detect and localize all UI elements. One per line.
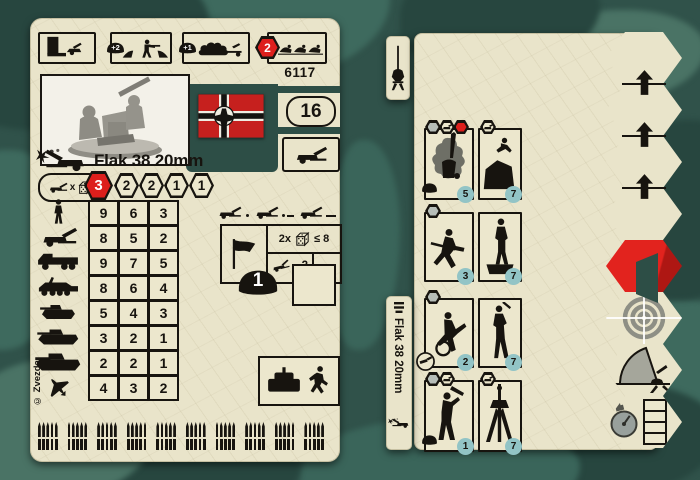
tank-front-icon xyxy=(266,367,302,395)
tiny-gun-icon xyxy=(483,124,494,130)
bullet xyxy=(55,422,58,437)
halftrack-icon xyxy=(37,277,79,297)
ammo-clip xyxy=(156,422,178,454)
entrench-bonus: +2 xyxy=(105,43,126,52)
ammo-clip xyxy=(97,422,119,454)
state-hex-gun-fill xyxy=(442,123,453,132)
strength-track-box xyxy=(292,264,336,306)
truck-icon xyxy=(37,252,79,271)
running-soldier-icon xyxy=(308,365,329,395)
unit-title-vertical: Flak 38 20mm xyxy=(392,318,404,393)
ammo-clip xyxy=(275,422,297,454)
attack-value-cell: 9 xyxy=(88,200,119,226)
bullet-case xyxy=(114,439,117,450)
bullet xyxy=(199,422,202,437)
bullet xyxy=(228,422,231,437)
bullet xyxy=(84,422,87,437)
bullet xyxy=(139,422,142,437)
bullet xyxy=(80,422,83,437)
attack-value-cell: 2 xyxy=(148,375,179,401)
tank-assault-box xyxy=(258,356,340,406)
bullet xyxy=(190,422,193,437)
target-infantry-icon xyxy=(30,200,86,223)
range-dot xyxy=(246,214,249,217)
multiply-label: x xyxy=(70,182,76,193)
attack-value-cell: 2 xyxy=(118,350,149,376)
attack-value-cell: 6 xyxy=(118,275,149,301)
range-gun-icon xyxy=(216,206,242,219)
bullet xyxy=(127,422,130,437)
attack-hex-value: 3 xyxy=(87,174,111,198)
entrench-modifier-box: +2 xyxy=(110,32,172,64)
bullet xyxy=(262,422,265,437)
cover-icon xyxy=(43,36,89,58)
state-hex-gray-fill xyxy=(428,375,439,384)
bullet-case xyxy=(313,439,316,450)
bullet xyxy=(309,422,312,437)
scene-stand-crew-icon xyxy=(482,216,518,276)
bullet-case xyxy=(321,439,324,450)
bullet-case xyxy=(292,439,295,450)
bullet-case xyxy=(68,439,71,450)
state-hex-gray-fill xyxy=(428,293,439,302)
bullet xyxy=(279,422,282,437)
dice-multiplier: 2x xyxy=(279,233,291,245)
range-dot xyxy=(282,214,285,217)
light-tank-icon xyxy=(40,304,76,320)
attack-value-cell: 4 xyxy=(88,375,119,401)
crew-box: 2 xyxy=(267,32,327,64)
flak-gun-icon xyxy=(47,182,68,193)
bullet-case xyxy=(38,439,41,450)
card-cutout xyxy=(276,127,340,134)
range-gun-icon xyxy=(297,206,323,219)
aa-position-tab xyxy=(386,36,410,100)
attack-value-cell: 2 xyxy=(118,325,149,351)
state-hex-gray-fill xyxy=(428,123,439,132)
bullet-case xyxy=(275,439,278,450)
bullet-case xyxy=(199,439,202,450)
bullet xyxy=(254,422,257,437)
product-code: 6117 xyxy=(264,65,336,80)
bullet-case xyxy=(131,439,134,450)
camouflage-bonus: +1 xyxy=(177,43,198,52)
ammo-strip xyxy=(38,422,334,454)
target-halftrack-icon xyxy=(30,275,86,298)
points-value: 16 xyxy=(286,96,336,127)
bullet-case xyxy=(232,439,235,450)
scene-dismount-icon xyxy=(482,132,518,194)
attack-value-cell: 4 xyxy=(148,275,179,301)
helmet-strength-value: 1 xyxy=(234,270,282,292)
helmet-icon xyxy=(420,434,439,446)
ammo-clip xyxy=(186,422,208,454)
unit-title: Flak 38 20mm xyxy=(94,151,203,171)
attack-value-cell: 6 xyxy=(118,200,149,226)
state-badge: 7 xyxy=(505,268,522,285)
attack-value-cell: 1 xyxy=(148,350,179,376)
attack-value-cell: 5 xyxy=(148,250,179,276)
copyright: © Zvezda xyxy=(32,314,43,406)
cover-modifier-box xyxy=(38,32,96,64)
target-truck-icon xyxy=(30,250,86,273)
bullet xyxy=(317,422,320,437)
bullet-case xyxy=(317,439,320,450)
bullet xyxy=(216,422,219,437)
tiny-gun-icon xyxy=(442,376,453,382)
bullet xyxy=(173,422,176,437)
bullet xyxy=(144,422,147,437)
bullet xyxy=(101,422,104,437)
bullet xyxy=(161,422,164,437)
dice-rule-row: 2x ≤ 8 xyxy=(268,226,340,252)
bullet-case xyxy=(283,439,286,450)
state-badge: 7 xyxy=(505,186,522,203)
bullet-case xyxy=(165,439,168,450)
attack-value-cell: 8 xyxy=(88,275,119,301)
bullet xyxy=(165,422,168,437)
bullet-case xyxy=(161,439,164,450)
medium-tank-icon xyxy=(37,329,79,345)
helmet-icon xyxy=(420,182,439,194)
scene-loader-icon xyxy=(482,302,518,362)
attack-value-cell: 3 xyxy=(118,375,149,401)
attack-hex-value: 2 xyxy=(117,176,137,196)
bullet-case xyxy=(287,439,290,450)
state-hex-gray-fill xyxy=(428,207,439,216)
state-badge: 5 xyxy=(457,186,474,203)
arrow-up-icon xyxy=(635,70,654,95)
target-field-gun-icon xyxy=(30,225,86,248)
state-badge: 7 xyxy=(505,438,522,455)
attack-value-cell: 5 xyxy=(88,300,119,326)
state-hex-gun-fill xyxy=(442,375,453,384)
bullet-case xyxy=(262,439,265,450)
bullet-case xyxy=(101,439,104,450)
unit-order-card: Flak 38 20mm 57372717 xyxy=(380,28,686,462)
infantry-icon xyxy=(52,199,65,225)
attack-hex: 1 xyxy=(164,173,189,198)
bullet-case xyxy=(55,439,58,450)
bullet-case xyxy=(304,439,307,450)
range-dash xyxy=(287,215,294,217)
german-war-flag xyxy=(198,94,264,138)
bullet xyxy=(114,422,117,437)
bullet-case xyxy=(254,439,257,450)
attack-value-cell: 7 xyxy=(118,250,149,276)
bullet-case xyxy=(203,439,206,450)
bullet xyxy=(186,422,189,437)
ammo-clip xyxy=(216,422,238,454)
attack-value-cell: 2 xyxy=(88,350,119,376)
dice-condition: ≤ 8 xyxy=(314,233,329,245)
bullet xyxy=(46,422,49,437)
points-tab: 16 xyxy=(278,93,340,127)
bullet xyxy=(156,422,159,437)
aa-gun-up-icon xyxy=(390,41,406,95)
bullet-case xyxy=(51,439,54,450)
bullet xyxy=(194,422,197,437)
ammo-clip xyxy=(38,422,60,454)
tiny-gun-icon xyxy=(442,124,453,130)
entrenched-soldier-icon xyxy=(121,36,168,60)
state-badge: 7 xyxy=(505,354,522,371)
ammo-clip xyxy=(68,422,90,454)
bullet-case xyxy=(258,439,261,450)
bullet-case xyxy=(216,439,219,450)
bullet-case xyxy=(224,439,227,450)
bullet-case xyxy=(186,439,189,450)
bullet xyxy=(220,422,223,437)
state-badge: 3 xyxy=(457,268,474,285)
bullet-case xyxy=(42,439,45,450)
scene-kneel-gunner-icon xyxy=(428,216,470,276)
firing-gun-icon xyxy=(36,148,90,174)
attack-value-cell: 3 xyxy=(148,200,179,226)
bullet xyxy=(131,422,134,437)
state-badge: 1 xyxy=(457,438,474,455)
bullet xyxy=(106,422,109,437)
attack-hex: 1 xyxy=(189,173,214,198)
bullet-case xyxy=(173,439,176,450)
arrow-up-icon xyxy=(635,122,654,147)
fire-while-moving-icon xyxy=(416,352,435,371)
attack-value-cell: 3 xyxy=(148,300,179,326)
gun-silhouette-box xyxy=(282,137,340,172)
field-gun-icon xyxy=(38,227,78,247)
bullet-case xyxy=(249,439,252,450)
crew-count-hex: 2 xyxy=(255,36,280,59)
bullet xyxy=(245,422,248,437)
camouflage-modifier-box: +1 xyxy=(182,32,250,64)
bullet-case xyxy=(309,439,312,450)
bullet-case xyxy=(110,439,113,450)
bullet-case xyxy=(144,439,147,450)
aircraft-icon xyxy=(46,375,70,399)
bullet-case xyxy=(106,439,109,450)
bullet-case xyxy=(72,439,75,450)
card-cutout xyxy=(276,86,340,93)
attack-hex: 2 xyxy=(114,173,139,198)
bullet xyxy=(76,422,79,437)
bullet xyxy=(135,422,138,437)
attack-value-cell: 1 xyxy=(148,325,179,351)
attack-hex-value: 1 xyxy=(167,176,187,196)
bullet xyxy=(313,422,316,437)
bullet-case xyxy=(139,439,142,450)
state-hex-gun-fill xyxy=(483,123,494,132)
bullet-case xyxy=(135,439,138,450)
bullet xyxy=(304,422,307,437)
attack-value-cell: 3 xyxy=(88,325,119,351)
attack-value-cell: 5 xyxy=(118,225,149,251)
firing-gun-icon xyxy=(388,416,411,431)
bullet-case xyxy=(169,439,172,450)
bullet-case xyxy=(127,439,130,450)
bullet xyxy=(110,422,113,437)
bullet xyxy=(232,422,235,437)
die-icon xyxy=(294,231,311,248)
bullet-case xyxy=(245,439,248,450)
bullet-case xyxy=(190,439,193,450)
bullet xyxy=(51,422,54,437)
attack-hex-value: 2 xyxy=(142,176,162,196)
bullet xyxy=(72,422,75,437)
tiny-gun-icon xyxy=(483,376,494,382)
attack-hex-value: 1 xyxy=(192,176,212,196)
bullet-case xyxy=(76,439,79,450)
bullet xyxy=(283,422,286,437)
bullet xyxy=(97,422,100,437)
tabletop-photo: +2 +1 2 6117 xyxy=(0,0,700,480)
bullet-case xyxy=(84,439,87,450)
camouflage-icon xyxy=(195,37,245,58)
ammo-clip xyxy=(245,422,267,454)
state-hex-red-fill xyxy=(456,123,467,132)
range-dash xyxy=(326,215,336,217)
bullet-case xyxy=(194,439,197,450)
attack-hex: 2 xyxy=(139,173,164,198)
arrow-up-icon xyxy=(635,174,654,199)
bullet-case xyxy=(97,439,100,450)
ammo-clip xyxy=(127,422,149,454)
ammo-clip xyxy=(304,422,326,454)
bullet xyxy=(258,422,261,437)
bullet xyxy=(224,422,227,437)
range-gun-icon xyxy=(253,206,279,219)
attack-value-cell: 2 xyxy=(148,225,179,251)
state-hex-gun-fill xyxy=(483,375,494,384)
attack-value-cell: 8 xyxy=(88,225,119,251)
black-flag-icon xyxy=(230,238,258,270)
scene-tripod-gun-icon xyxy=(482,384,518,446)
bullet xyxy=(275,422,278,437)
bullet xyxy=(249,422,252,437)
attack-value-cell: 9 xyxy=(88,250,119,276)
gun-silhouette-tab xyxy=(278,134,340,172)
bullet xyxy=(203,422,206,437)
bullet xyxy=(169,422,172,437)
bullet xyxy=(38,422,41,437)
bullet xyxy=(42,422,45,437)
unit-stat-card: +2 +1 2 6117 xyxy=(30,18,340,462)
bullet-case xyxy=(46,439,49,450)
bullet xyxy=(292,422,295,437)
bullet xyxy=(68,422,71,437)
entrench-tool-icon xyxy=(393,301,405,314)
bullet-case xyxy=(80,439,83,450)
bullet xyxy=(287,422,290,437)
crew-icon xyxy=(278,39,323,57)
attack-value-cell: 4 xyxy=(118,300,149,326)
crew-count: 2 xyxy=(258,39,278,57)
bullet-case xyxy=(156,439,159,450)
unit-title-tab: Flak 38 20mm xyxy=(386,296,412,450)
flak-gun-icon xyxy=(290,146,330,164)
bullet-case xyxy=(228,439,231,450)
bullet-case xyxy=(220,439,223,450)
bullet-case xyxy=(279,439,282,450)
state-badge: 2 xyxy=(457,354,474,371)
bullet xyxy=(321,422,324,437)
